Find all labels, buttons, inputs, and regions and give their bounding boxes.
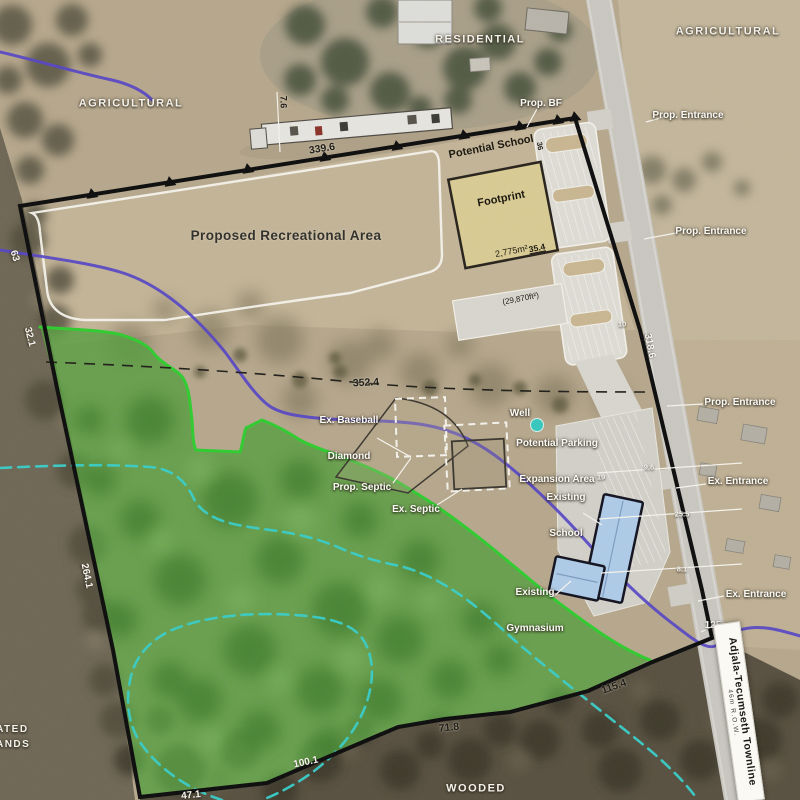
label-existing-school-line2: School bbox=[547, 528, 586, 540]
dim-parking: 19 bbox=[597, 473, 605, 482]
label-school-footprint-area-imperial: (29,870ft²) bbox=[477, 286, 563, 312]
label-baseball-line1: Ex. Baseball bbox=[320, 415, 379, 427]
site-plan-map: RESIDENTIAL AGRICULTURAL AGRICULTURAL WO… bbox=[0, 0, 800, 800]
zone-label-wetlands-line1: EVALUATED bbox=[0, 724, 29, 736]
label-school-footprint-line2: Footprint bbox=[458, 184, 545, 214]
dim-gap-b: 25.5 bbox=[675, 510, 690, 519]
dim-north-setback: 7.6 bbox=[278, 96, 289, 109]
label-prop-entrance-1: Prop. Entrance bbox=[652, 110, 723, 122]
label-prop-septic: Prop. Septic bbox=[333, 482, 391, 494]
dim-road-gap: 10 bbox=[618, 320, 626, 329]
label-existing-gym-line2: Gymnasium bbox=[506, 623, 563, 635]
label-ex-septic: Ex. Septic bbox=[392, 504, 440, 516]
label-baseball-diamond: Ex. Baseball Diamond bbox=[320, 391, 379, 475]
label-existing-gym-line1: Existing bbox=[506, 587, 563, 599]
label-parking-expansion-line1: Potential Parking bbox=[516, 438, 598, 450]
label-existing-school: Existing School bbox=[547, 468, 586, 552]
zone-label-wooded: WOODED bbox=[446, 782, 506, 795]
label-baseball-line2: Diamond bbox=[320, 451, 379, 463]
label-existing-gym: Existing Gymnasium bbox=[506, 563, 563, 647]
zone-label-wetlands-line2: WETLANDS bbox=[0, 739, 30, 751]
label-prop-entrance-3: Prop. Entrance bbox=[704, 397, 775, 409]
dim-south-mid: 71.8 bbox=[438, 721, 460, 736]
label-recreational-area: Proposed Recreational Area bbox=[191, 228, 382, 244]
dim-gap-c: 8.1 bbox=[677, 565, 687, 574]
zone-label-agricultural-east: AGRICULTURAL bbox=[676, 25, 781, 38]
label-ex-entrance-2: Ex. Entrance bbox=[726, 589, 787, 601]
dim-gap-a: 9.6 bbox=[644, 463, 654, 472]
label-existing-school-line1: Existing bbox=[547, 492, 586, 504]
label-prop-entrance-2: Prop. Entrance bbox=[675, 226, 746, 238]
dim-south-corner: 47.1 bbox=[181, 789, 202, 800]
label-school-footprint-line1: Potential School bbox=[448, 133, 535, 163]
dim-mid-dashed: 352.4 bbox=[353, 376, 380, 390]
dim-parking-north: 36 bbox=[535, 141, 545, 151]
zone-label-agricultural-west: AGRICULTURAL bbox=[79, 97, 184, 110]
zone-label-residential: RESIDENTIAL bbox=[435, 33, 525, 46]
label-ex-entrance-1: Ex. Entrance bbox=[708, 476, 769, 488]
